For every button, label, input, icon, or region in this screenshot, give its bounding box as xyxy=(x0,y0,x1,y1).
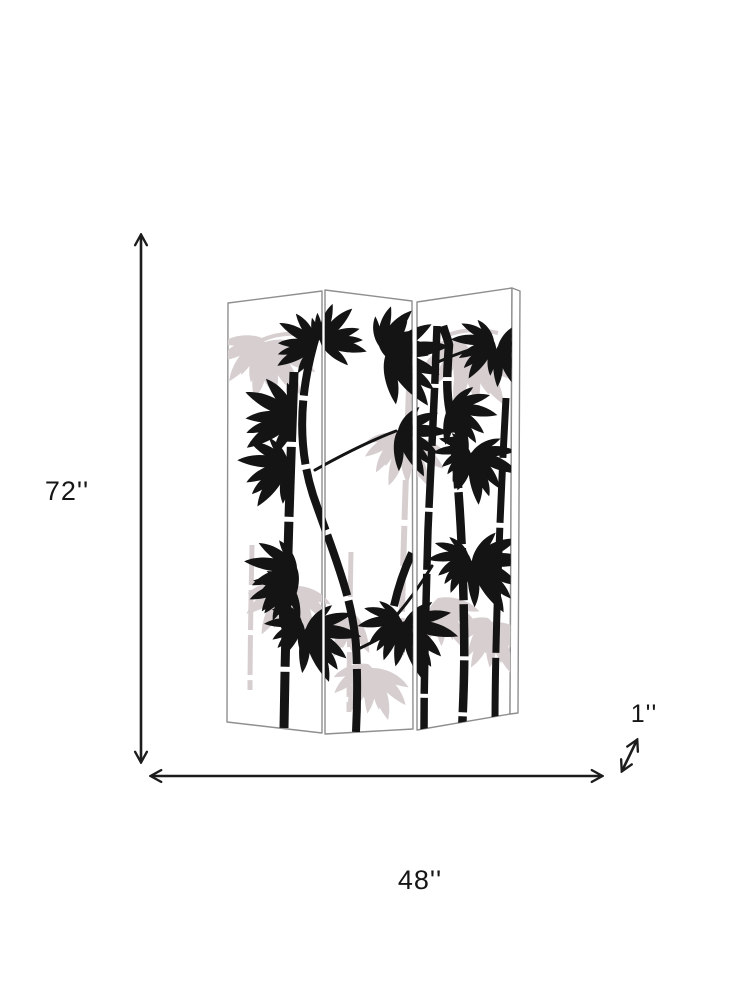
depth-dimension-label: 1'' xyxy=(631,700,657,728)
width-dimension-label: 48'' xyxy=(398,865,442,895)
product-dimension-diagram: 72'' 48'' 1'' xyxy=(0,0,750,1000)
bamboo-stalk xyxy=(250,545,252,690)
depth-dimension-arrow xyxy=(622,740,637,771)
height-dimension-label: 72'' xyxy=(45,476,89,506)
